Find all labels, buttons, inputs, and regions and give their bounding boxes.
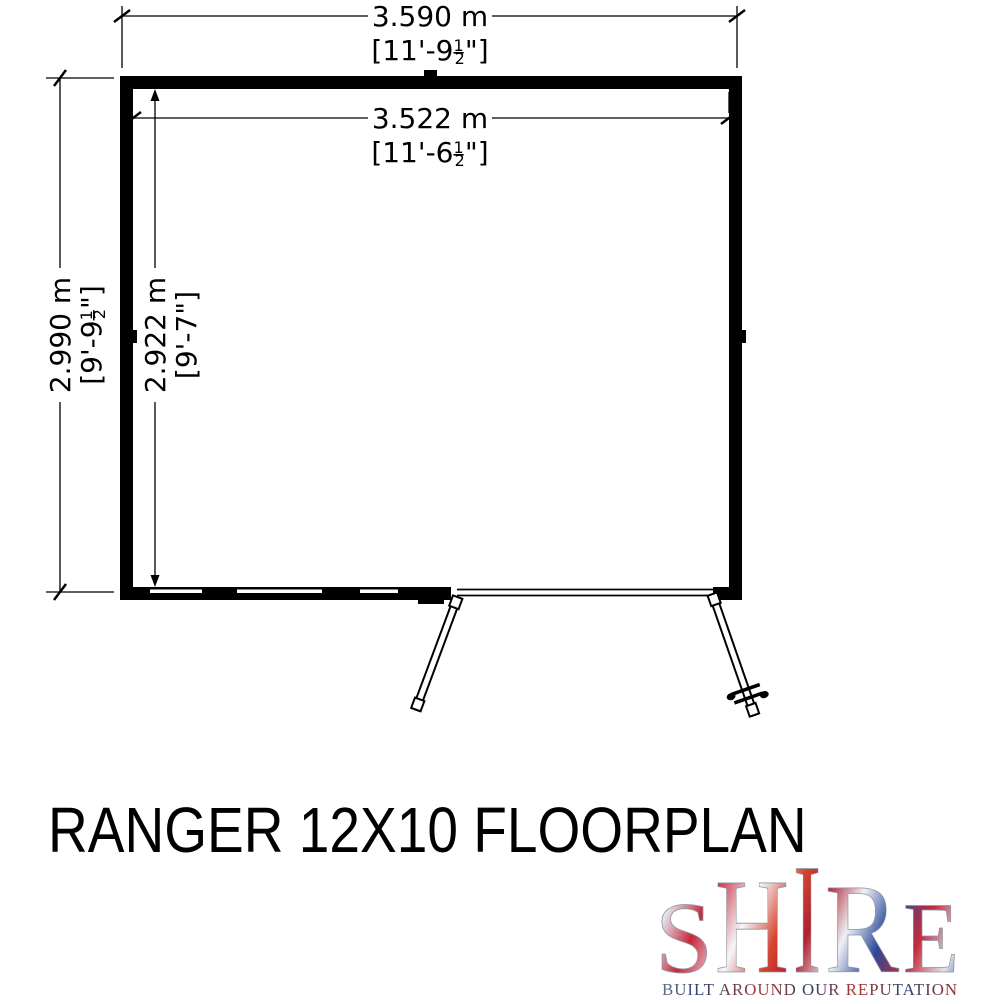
dim-outer-width-metric: 3.590 m: [372, 0, 488, 33]
door-right-end-block: [746, 703, 759, 717]
door-handle-knob: [759, 690, 770, 700]
window-slot: [237, 590, 322, 594]
door-right-hinge-block: [708, 592, 721, 606]
door-left-end-block: [411, 698, 424, 712]
logo-letter-e: E: [903, 882, 959, 995]
dim-arrow-down: [151, 575, 160, 587]
dim-outer-depth-imperial: [9'-912"]: [75, 285, 109, 385]
logo-letter-s: S: [655, 882, 713, 995]
dim-inner-width: 3.522 m [11'-612"]: [125, 92, 737, 170]
wall-left: [120, 76, 133, 600]
logo-tagline: BUILT AROUND OUR REPUTATION: [662, 980, 958, 999]
dim-inner-depth-imperial: [9'-7"]: [170, 291, 203, 379]
door-left-panel: [413, 598, 461, 711]
dim-inner-width-imperial: [11'-612"]: [371, 136, 488, 170]
dim-outer-width: 3.590 m [11'-912"]: [114, 0, 745, 68]
door-leaf-right: [693, 587, 774, 721]
window-slot: [360, 590, 398, 594]
dim-outer-depth: 2.990 m [9'-912"]: [44, 70, 114, 600]
dim-inner-width-metric: 3.522 m: [372, 102, 488, 135]
wall-top: [120, 76, 742, 89]
wall-right: [729, 76, 742, 600]
window-slot: [150, 590, 202, 594]
notch-right-wall: [742, 330, 746, 343]
door-opening: [411, 587, 774, 721]
dim-arrow-up: [151, 89, 160, 101]
wall-bottom-left: [120, 587, 451, 600]
notch-top-wall: [424, 70, 437, 76]
shire-logo: S H I R E BUILT AROUND OUR REPUTATION: [645, 852, 975, 1004]
notch-left-wall: [133, 330, 137, 343]
dim-inner-depth: 2.922 m [9'-7"]: [139, 89, 203, 587]
door-jamb-block: [418, 597, 444, 604]
dim-outer-depth-metric: 2.990 m: [44, 277, 77, 393]
floorplan-svg: 3.590 m [11'-912"] 3.522 m [11'-612"] 2.…: [0, 0, 1000, 780]
logo-letter-r: R: [825, 858, 900, 1000]
dim-inner-depth-metric: 2.922 m: [139, 277, 172, 393]
dim-outer-width-imperial: [11'-912"]: [371, 34, 488, 68]
door-left-hinge-block: [449, 595, 462, 609]
door-leaf-left: [411, 595, 462, 711]
